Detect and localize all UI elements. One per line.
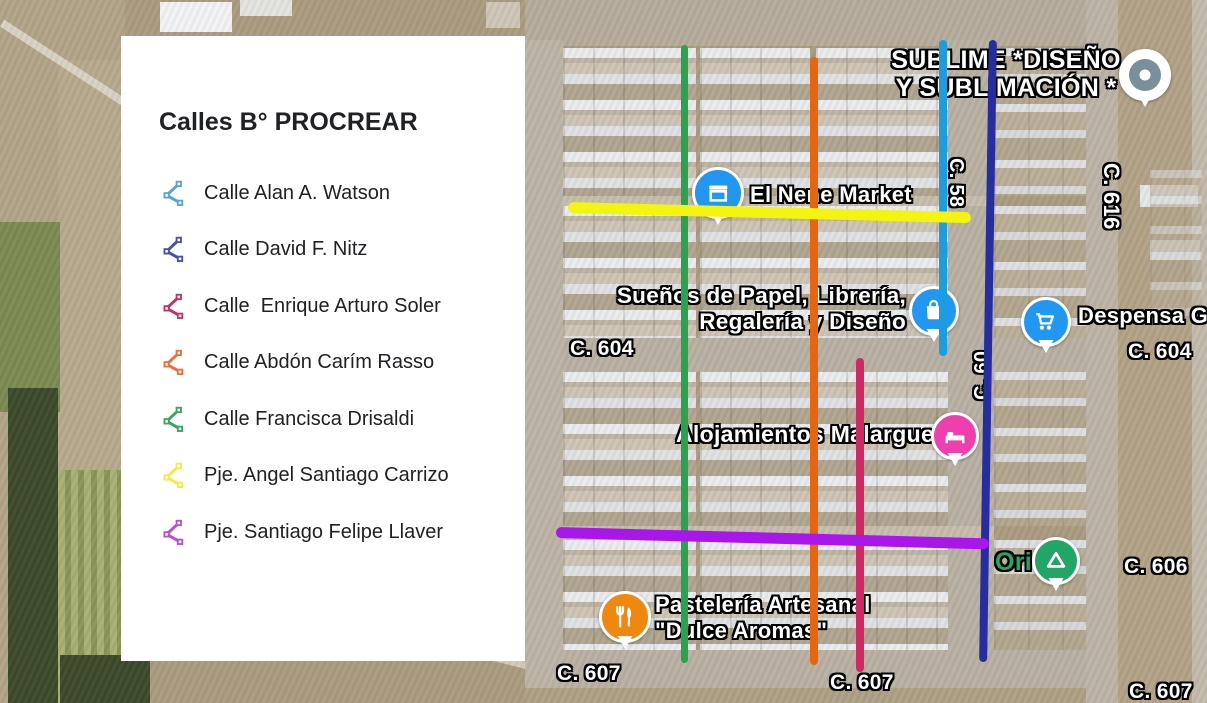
route-polyline-icon bbox=[161, 349, 188, 376]
route-polyline-icon bbox=[161, 293, 188, 320]
pasteleria-pin[interactable] bbox=[599, 591, 651, 643]
legend-item-calle-francisca-drisaldi[interactable]: Calle Francisca Drisaldi bbox=[161, 406, 449, 432]
campground-icon bbox=[1043, 548, 1069, 574]
storefront-icon bbox=[704, 179, 733, 208]
route-polyline-icon bbox=[161, 462, 188, 489]
overlay-line-calle-alan-a-watson[interactable] bbox=[939, 40, 947, 356]
poi-label-alojamientos-malargue[interactable]: Alojamientos Malargue bbox=[676, 421, 934, 447]
shopping-cart-icon bbox=[1032, 308, 1059, 335]
alojamientos-malargue-pin[interactable] bbox=[931, 412, 979, 460]
overlay-line-calle-francisca-drisaldi[interactable] bbox=[681, 45, 688, 663]
bed-icon bbox=[942, 423, 968, 449]
street-label-c606: C. 606 bbox=[1124, 555, 1188, 579]
restaurant-icon bbox=[611, 603, 640, 632]
street-label-c607-right: C. 607 bbox=[1129, 680, 1193, 703]
street-label-c58: C. 58 bbox=[944, 158, 967, 207]
poi-label-suenos-de-papel[interactable]: Sueños de Papel, Librería, Regalería y D… bbox=[612, 283, 906, 335]
legend-list: Calle Alan A. Watson Calle David F. Nitz… bbox=[161, 180, 449, 576]
legend-item-pje-angel-santiago-carrizo[interactable]: Pje. Angel Santiago Carrizo bbox=[161, 463, 449, 489]
despensa-pin[interactable] bbox=[1021, 297, 1071, 347]
street-label-c607-left: C. 607 bbox=[557, 662, 621, 686]
poi-label-el-nene-market[interactable]: El Nene Market bbox=[750, 182, 912, 208]
street-label-c607-center: C. 607 bbox=[830, 671, 894, 695]
route-polyline-icon bbox=[161, 406, 188, 433]
route-polyline-icon bbox=[161, 236, 188, 263]
legend-title: Calles B° PROCREAR bbox=[159, 108, 418, 137]
poi-label-sublime[interactable]: SUBLIME *DISEÑO Y SUBLIMACIÓN * bbox=[886, 46, 1126, 102]
route-polyline-icon bbox=[161, 519, 188, 546]
legend-item-calle-alan-a-watson[interactable]: Calle Alan A. Watson bbox=[161, 180, 449, 206]
suenos-de-papel-pin[interactable] bbox=[909, 286, 959, 336]
street-label-c604-left: C. 604 bbox=[570, 337, 634, 361]
legend-panel: Calles B° PROCREAR Calle Alan A. Watson … bbox=[121, 36, 525, 661]
legend-item-calle-enrique-arturo-soler[interactable]: Calle Enrique Arturo Soler bbox=[161, 293, 449, 319]
poi-label-despensa[interactable]: Despensa G bbox=[1078, 303, 1207, 329]
map-canvas[interactable]: C. 604 C. 604 C. 606 C. 607 C. 607 C. 60… bbox=[0, 0, 1207, 703]
poi-label-ori[interactable]: Ori bbox=[995, 549, 1032, 575]
legend-item-calle-david-f-nitz[interactable]: Calle David F. Nitz bbox=[161, 237, 449, 263]
circle-dot-marker-icon bbox=[1129, 59, 1161, 91]
sublime-marker-pin[interactable] bbox=[1119, 49, 1171, 101]
ori-pin[interactable] bbox=[1032, 537, 1080, 585]
overlay-line-calle-enrique-arturo-soler[interactable] bbox=[856, 358, 864, 672]
legend-item-calle-abdon-carim-rasso[interactable]: Calle Abdón Carím Rasso bbox=[161, 350, 449, 376]
overlay-line-calle-abdon-carim-rasso[interactable] bbox=[810, 57, 818, 665]
route-polyline-icon bbox=[161, 180, 188, 207]
legend-item-pje-santiago-felipe-llaver[interactable]: Pje. Santiago Felipe Llaver bbox=[161, 519, 449, 545]
street-label-c616: C. 616 bbox=[1098, 163, 1124, 230]
street-label-c604-right: C. 604 bbox=[1128, 340, 1192, 364]
